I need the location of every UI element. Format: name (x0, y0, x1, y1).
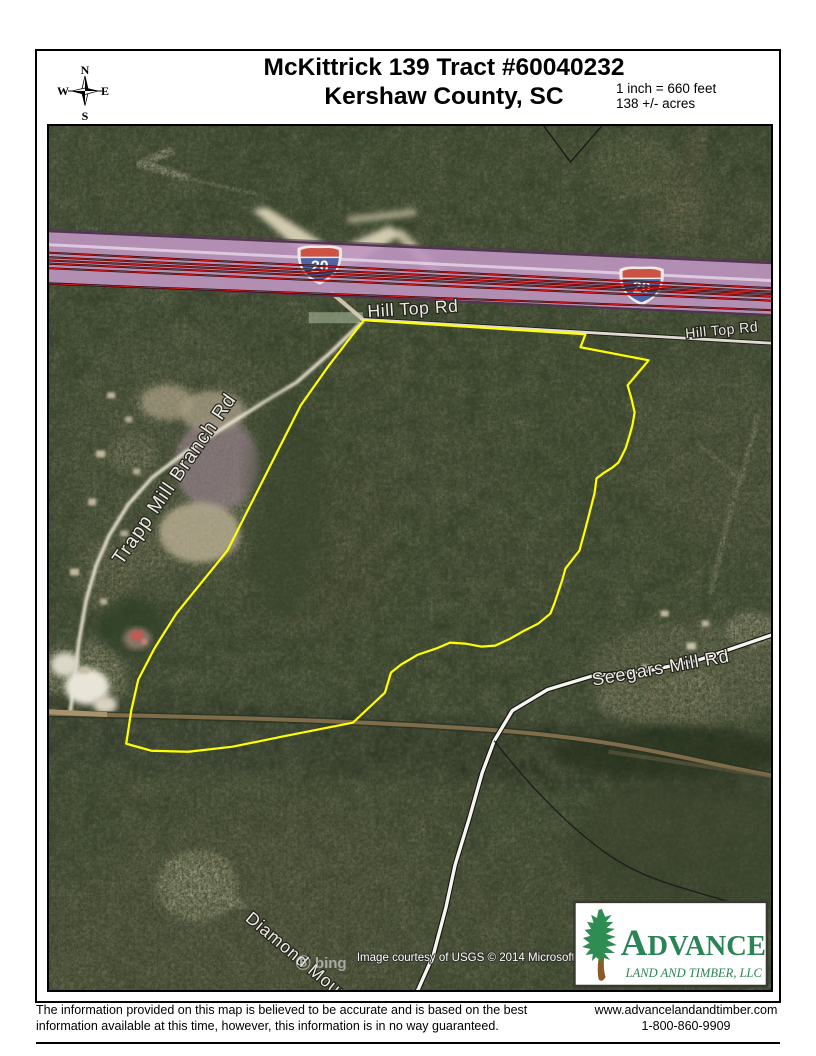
svg-text:Ⓑ bing: Ⓑ bing (296, 954, 347, 972)
svg-text:N: N (81, 63, 90, 77)
svg-text:LAND AND TIMBER, LLC: LAND AND TIMBER, LLC (625, 966, 763, 980)
svg-text:S: S (82, 109, 89, 123)
svg-text:Image courtesy of USGS © 2014: Image courtesy of USGS © 2014 Microsoft (357, 952, 576, 964)
svg-text:E: E (101, 84, 109, 98)
svg-text:W: W (57, 84, 69, 98)
